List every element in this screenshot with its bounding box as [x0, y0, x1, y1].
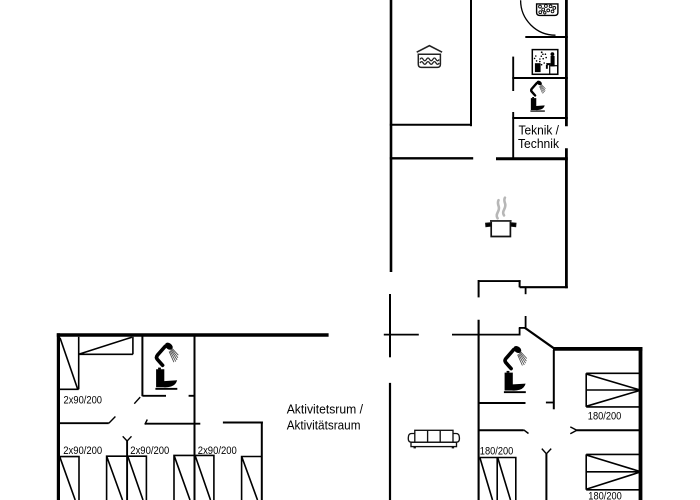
svg-text:Technik: Technik: [518, 136, 559, 151]
svg-text:2x90/200: 2x90/200: [198, 445, 237, 457]
svg-text:Aktivitetsrum /: Aktivitetsrum /: [287, 402, 364, 417]
svg-text:Aktivitätsraum: Aktivitätsraum: [287, 418, 361, 433]
svg-text:180/200: 180/200: [588, 410, 622, 422]
svg-text:180/200: 180/200: [480, 446, 514, 458]
svg-text:2x90/200: 2x90/200: [63, 445, 102, 457]
svg-text:180/200: 180/200: [588, 490, 622, 500]
svg-text:2x90/200: 2x90/200: [130, 445, 169, 457]
svg-text:2x90/200: 2x90/200: [64, 395, 103, 407]
